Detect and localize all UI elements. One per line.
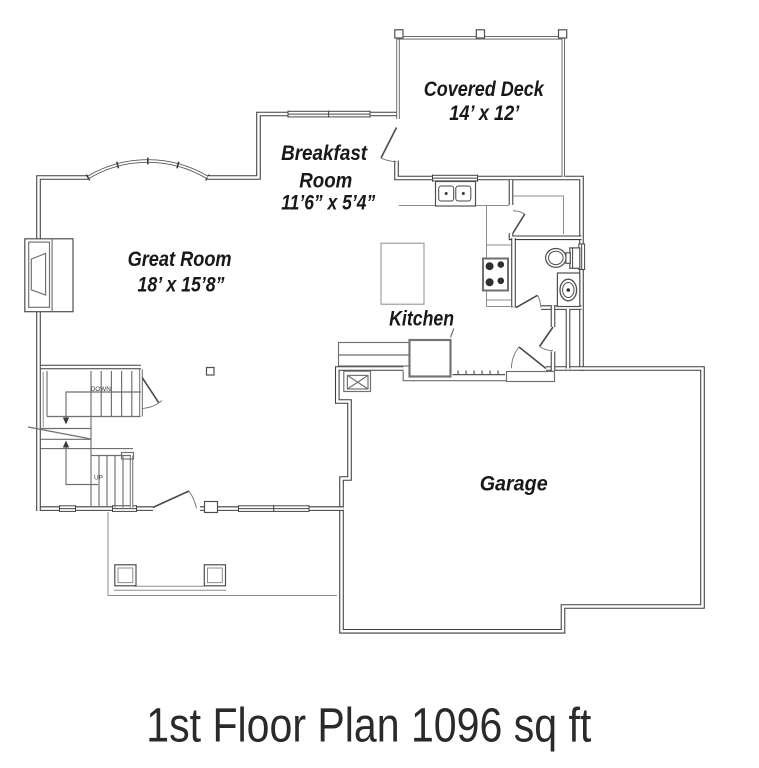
svg-text:Breakfast: Breakfast [281, 141, 368, 165]
svg-text:1st Floor Plan 1096 sq ft: 1st Floor Plan 1096 sq ft [146, 700, 591, 753]
svg-text:DOWN: DOWN [91, 386, 112, 393]
svg-text:Great Room: Great Room [128, 247, 232, 271]
svg-text:Garage: Garage [480, 472, 548, 496]
svg-text:Room: Room [299, 169, 352, 193]
svg-text:Covered Deck: Covered Deck [424, 77, 545, 101]
svg-text:UP: UP [94, 475, 103, 482]
svg-text:Kitchen: Kitchen [389, 307, 454, 331]
svg-text:14’ x 12’: 14’ x 12’ [449, 101, 520, 125]
svg-text:11’6” x 5’4”: 11’6” x 5’4” [281, 191, 375, 215]
svg-text:18’ x 15’8”: 18’ x 15’8” [138, 272, 225, 296]
